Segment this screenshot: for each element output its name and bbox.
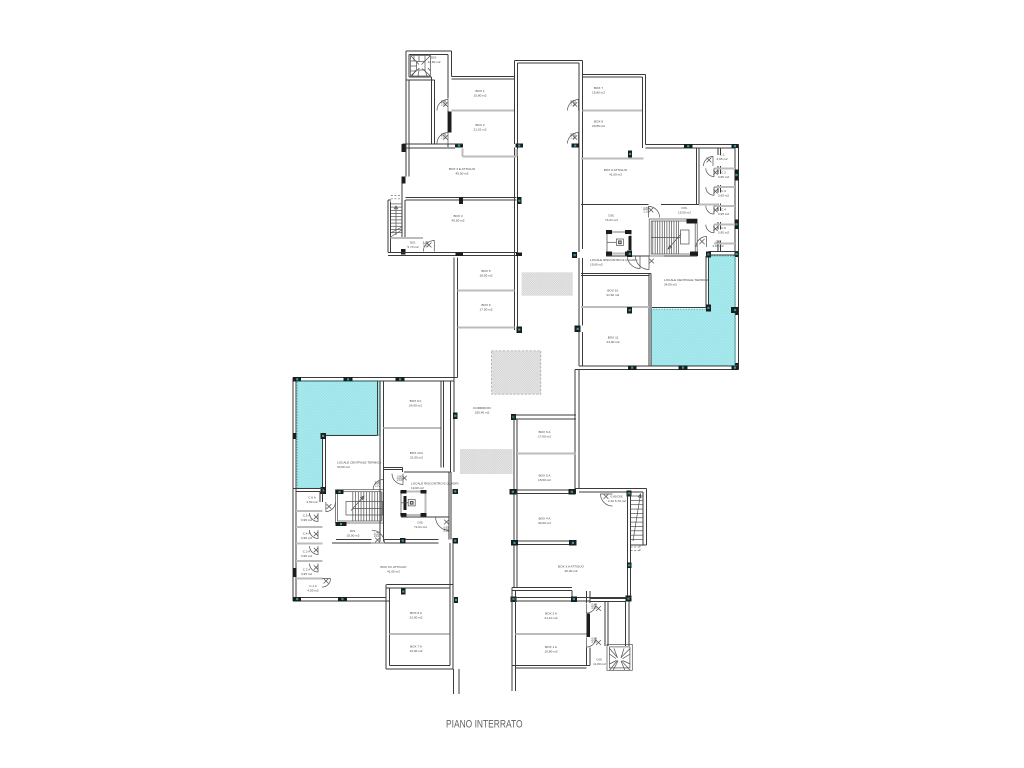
svg-text:19,80 m2: 19,80 m2 (545, 650, 558, 654)
svg-text:4,50 m2: 4,50 m2 (307, 589, 318, 593)
svg-text:LOCALE RISCONTRO E QUADRI: LOCALE RISCONTRO E QUADRI (590, 258, 638, 262)
svg-text:0.80: 0.80 (570, 99, 576, 103)
svg-text:2.10 6,70 m2: 2.10 6,70 m2 (608, 499, 626, 503)
svg-text:1.40: 1.40 (423, 240, 429, 244)
svg-text:19,00 m2: 19,00 m2 (590, 263, 603, 267)
svg-text:41,00 m2: 41,00 m2 (387, 570, 400, 574)
svg-text:BOX 7: BOX 7 (594, 86, 603, 90)
svg-text:BOX 5 A: BOX 5 A (539, 474, 552, 478)
svg-text:C.4: C.4 (721, 208, 726, 212)
svg-text:LOCALE CENTRALE TERMICA: LOCALE CENTRALE TERMICA (337, 460, 382, 464)
svg-text:2.10: 2.10 (570, 102, 576, 106)
svg-text:45,50 m2: 45,50 m2 (452, 219, 465, 223)
svg-text:2.10: 2.10 (441, 102, 447, 106)
svg-text:3,95 m2: 3,95 m2 (718, 175, 729, 179)
svg-text:41,00 m2: 41,00 m2 (609, 173, 622, 177)
svg-text:30,00 m2: 30,00 m2 (538, 521, 551, 525)
svg-text:BOX 9 b ATTIGUO: BOX 9 b ATTIGUO (381, 565, 407, 569)
svg-text:45,50 m2: 45,50 m2 (456, 172, 469, 176)
svg-text:2.10: 2.10 (374, 534, 380, 538)
svg-text:40,00 m2: 40,00 m2 (565, 569, 578, 573)
svg-text:BOX 6: BOX 6 (481, 303, 490, 307)
svg-text:BOX 7 A: BOX 7 A (410, 645, 423, 649)
svg-text:3,95 m2: 3,95 m2 (301, 572, 312, 576)
svg-text:C.6 A: C.6 A (308, 496, 317, 500)
svg-text:19,00 m2: 19,00 m2 (411, 486, 424, 490)
svg-text:3,95 m2: 3,95 m2 (718, 231, 729, 235)
svg-text:DIS.: DIS. (410, 241, 416, 245)
svg-text:CORRIDOIO: CORRIDOIO (473, 406, 491, 410)
svg-text:17,00 m2: 17,00 m2 (538, 435, 551, 439)
svg-text:1.40: 1.40 (374, 531, 380, 535)
svg-text:3,95 m2: 3,95 m2 (718, 212, 729, 216)
svg-text:2.10: 2.10 (643, 209, 649, 213)
svg-text:DIS.: DIS. (431, 56, 437, 60)
svg-text:C.2: C.2 (721, 171, 726, 175)
svg-text:3,95 m2: 3,95 m2 (301, 554, 312, 558)
svg-text:BOX 6 ATTIGUO: BOX 6 ATTIGUO (604, 168, 628, 172)
svg-text:0.80: 0.80 (643, 206, 649, 210)
svg-text:15,80 m2: 15,80 m2 (592, 91, 605, 95)
svg-text:19,00 m2: 19,00 m2 (410, 649, 423, 653)
svg-text:0.80: 0.80 (570, 132, 576, 136)
svg-text:3,95 m2: 3,95 m2 (718, 194, 729, 198)
svg-text:0.80: 0.80 (591, 637, 597, 641)
svg-text:C.6: C.6 (716, 240, 721, 244)
svg-text:C.5: C.5 (721, 226, 726, 230)
svg-text:4,95 m2: 4,95 m2 (716, 157, 727, 161)
svg-text:BOX 4: BOX 4 (453, 214, 462, 218)
svg-text:2.10: 2.10 (570, 135, 576, 139)
svg-text:3,95 m2: 3,95 m2 (301, 536, 312, 540)
svg-text:23,00 m2: 23,00 m2 (410, 616, 423, 620)
svg-text:2.10: 2.10 (423, 243, 429, 247)
svg-text:BOX 2: BOX 2 (475, 123, 484, 127)
svg-text:BOX 6 A: BOX 6 A (539, 430, 552, 434)
svg-text:BOX 3 A ATTIGUO: BOX 3 A ATTIGUO (558, 565, 584, 569)
svg-text:15,80 m2: 15,80 m2 (474, 94, 487, 98)
svg-text:5,70 m2: 5,70 m2 (407, 245, 418, 249)
svg-text:DIS.: DIS. (681, 206, 687, 210)
svg-text:BOX 10: BOX 10 (607, 289, 618, 293)
svg-text:0.80: 0.80 (397, 475, 403, 479)
svg-text:0.80: 0.80 (441, 132, 447, 136)
svg-text:BOX 4 A: BOX 4 A (539, 517, 552, 521)
svg-text:PIANO INTERRATO: PIANO INTERRATO (446, 719, 523, 731)
svg-text:34,00 m2: 34,00 m2 (664, 283, 677, 287)
svg-text:21,50 m2: 21,50 m2 (410, 456, 423, 460)
svg-text:0.80 DIS.: 0.80 DIS. (611, 495, 624, 499)
svg-text:C.2 A: C.2 A (303, 568, 312, 572)
svg-text:BOX 11: BOX 11 (608, 336, 619, 340)
svg-text:15,00 m2: 15,00 m2 (347, 534, 360, 538)
svg-text:18,50 m2: 18,50 m2 (480, 274, 493, 278)
svg-text:0.80: 0.80 (443, 526, 449, 530)
svg-text:BOX 10 b: BOX 10 b (410, 451, 424, 455)
svg-text:BOX 2 A: BOX 2 A (545, 612, 558, 616)
svg-text:0.80: 0.80 (441, 99, 447, 103)
svg-text:BOX 8: BOX 8 (594, 120, 603, 124)
svg-text:C.1 A: C.1 A (309, 584, 318, 588)
svg-text:18,50 m2: 18,50 m2 (538, 478, 551, 482)
svg-text:23,85 m2: 23,85 m2 (592, 124, 605, 128)
svg-text:BOX 3 E ATTIGUO: BOX 3 E ATTIGUO (449, 167, 476, 171)
svg-text:BOX 9 b: BOX 9 b (410, 399, 422, 403)
svg-text:17,00 m2: 17,00 m2 (480, 308, 493, 312)
svg-text:24,50 m2: 24,50 m2 (409, 404, 422, 408)
svg-text:74,01 m2: 74,01 m2 (605, 218, 618, 222)
svg-text:DIS.: DIS. (417, 521, 423, 525)
svg-text:235,40 m2: 235,40 m2 (475, 411, 490, 415)
svg-text:DIS.: DIS. (596, 658, 602, 662)
svg-text:2.10: 2.10 (591, 606, 597, 610)
svg-text:74,01 m2: 74,01 m2 (414, 525, 427, 529)
svg-text:DIS.: DIS. (608, 214, 614, 218)
svg-text:24,00 m2: 24,00 m2 (607, 340, 620, 344)
svg-text:21,51 m2: 21,51 m2 (474, 128, 487, 132)
svg-text:12,80 m2: 12,80 m2 (428, 60, 441, 64)
svg-text:4,95 m2: 4,95 m2 (712, 244, 723, 248)
svg-text:BOX 8 A: BOX 8 A (410, 611, 423, 615)
svg-text:21,50 m2: 21,50 m2 (606, 293, 619, 297)
svg-text:2.10: 2.10 (441, 135, 447, 139)
svg-text:11,80 m2: 11,80 m2 (593, 662, 606, 666)
svg-text:2.10: 2.10 (397, 478, 403, 482)
svg-text:BOX 5: BOX 5 (481, 269, 490, 273)
svg-text:BOX 1 A: BOX 1 A (545, 645, 558, 649)
svg-text:BOX 1: BOX 1 (475, 89, 484, 93)
svg-text:15,00 m2: 15,00 m2 (678, 211, 691, 215)
svg-text:2.10: 2.10 (591, 640, 597, 644)
svg-text:C.3 A: C.3 A (303, 550, 312, 554)
svg-text:DIS.: DIS. (350, 529, 356, 533)
svg-text:C.3: C.3 (721, 189, 726, 193)
svg-text:3,95 m2: 3,95 m2 (301, 518, 312, 522)
svg-text:0.80: 0.80 (591, 603, 597, 607)
svg-text:2.10: 2.10 (443, 529, 449, 533)
svg-text:C.1: C.1 (720, 153, 725, 157)
svg-text:21,10 m2: 21,10 m2 (545, 616, 558, 620)
svg-text:LOCALE CENTRALE TERMICA: LOCALE CENTRALE TERMICA (664, 278, 709, 282)
svg-text:33,50 m2: 33,50 m2 (337, 465, 350, 469)
svg-text:4,50 m2: 4,50 m2 (306, 500, 317, 504)
